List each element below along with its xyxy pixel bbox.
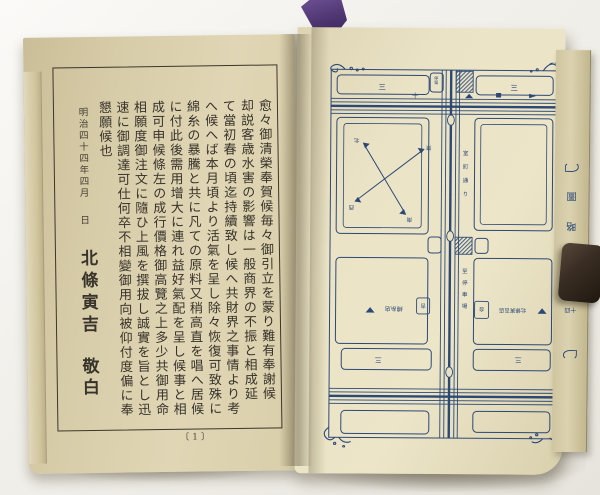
ornament-curl-icon [565,162,579,172]
house-mark-icon [538,308,547,314]
block-bottom-left [341,410,429,434]
ornament-curl-icon [563,350,577,360]
shop-site-hatched [455,237,472,254]
edge-title-char: 略 [554,220,588,235]
letter-column: に付此後需用增大に連れ益好氣配を呈し候事と相 [167,100,184,422]
square-mark-icon [496,93,501,98]
letter-column: 速に御調達可仕何卒不相變御用向被仰付度偏に奉 [114,100,131,422]
block-mid-right-outer [474,118,553,231]
tram-stop-tab [475,238,488,253]
block-label: 三 [375,356,382,364]
block-label: 三 [510,84,518,93]
compass-cross [354,142,425,214]
tram-stop-tab [428,237,441,253]
right-page: 三 三 十 停留 室町通り 至停車場 北 東 西 南 吉 綿糸店 合 北條寅吉店… [294,27,565,475]
date-day: 日 [78,215,88,225]
compass-label-se: 南 [406,216,412,224]
left-page: 愈々御清榮奉賀候毎々御引立を蒙り難有奉謝候 却説客歳水害の影響は一般商界の不振と… [23,34,301,474]
date-line: 明治四十四年四月 [77,107,88,199]
left-page-edge [23,72,46,464]
house-mark-icon [465,94,473,99]
street-name-upper: 室町通り [461,149,468,205]
compass-label-sw: 西 [348,203,354,210]
street-node [447,115,454,125]
stop-tab-label: 停留 [434,75,439,86]
page-number: 〔1〕 [156,429,236,443]
shop-label-left: 綿糸店 [385,305,403,313]
arrow-mark-icon [529,94,536,98]
binding-clasp [558,242,600,303]
block-mid-right-inner [480,124,547,224]
block-label: 三 [378,83,386,92]
vicinity-map: 三 三 十 停留 室町通り 至停車場 北 東 西 南 吉 綿糸店 合 北條寅吉店… [319,61,564,449]
compass-label-nw: 北 [353,136,359,144]
street-name-lower: 至停車場 [461,268,468,315]
block-strip-right [473,349,550,371]
edge-title-char: 圖 [554,190,588,205]
signature-closing: 敬白 [79,357,97,399]
street-lower [329,388,555,405]
edge-title-small: 十四 [553,306,587,315]
signature-name: 北條寅吉 [78,249,96,337]
block-low-left [335,257,428,344]
block-strip-left [341,348,431,370]
block-label: 三 [515,356,522,364]
block-bottom-right [473,411,550,433]
shop-label-right: 北條寅吉店 [498,306,526,314]
house-mark-icon [366,307,375,313]
shop-box-label: 吉 [420,302,426,309]
compass-label-ne: 東 [425,144,431,152]
shop-site-hatched [456,71,473,92]
shop-box-label: 合 [478,305,484,313]
gutter-shadow [279,34,313,466]
street-upper [331,98,557,115]
street-node [446,367,453,377]
photo-of-open-booklet: 愈々御清榮奉賀候毎々御引立を蒙り難有奉謝候 却説客歳水害の影響は一般商界の不振と… [0,0,600,495]
cross-mark: 十 [412,91,419,100]
street-node [447,231,454,241]
